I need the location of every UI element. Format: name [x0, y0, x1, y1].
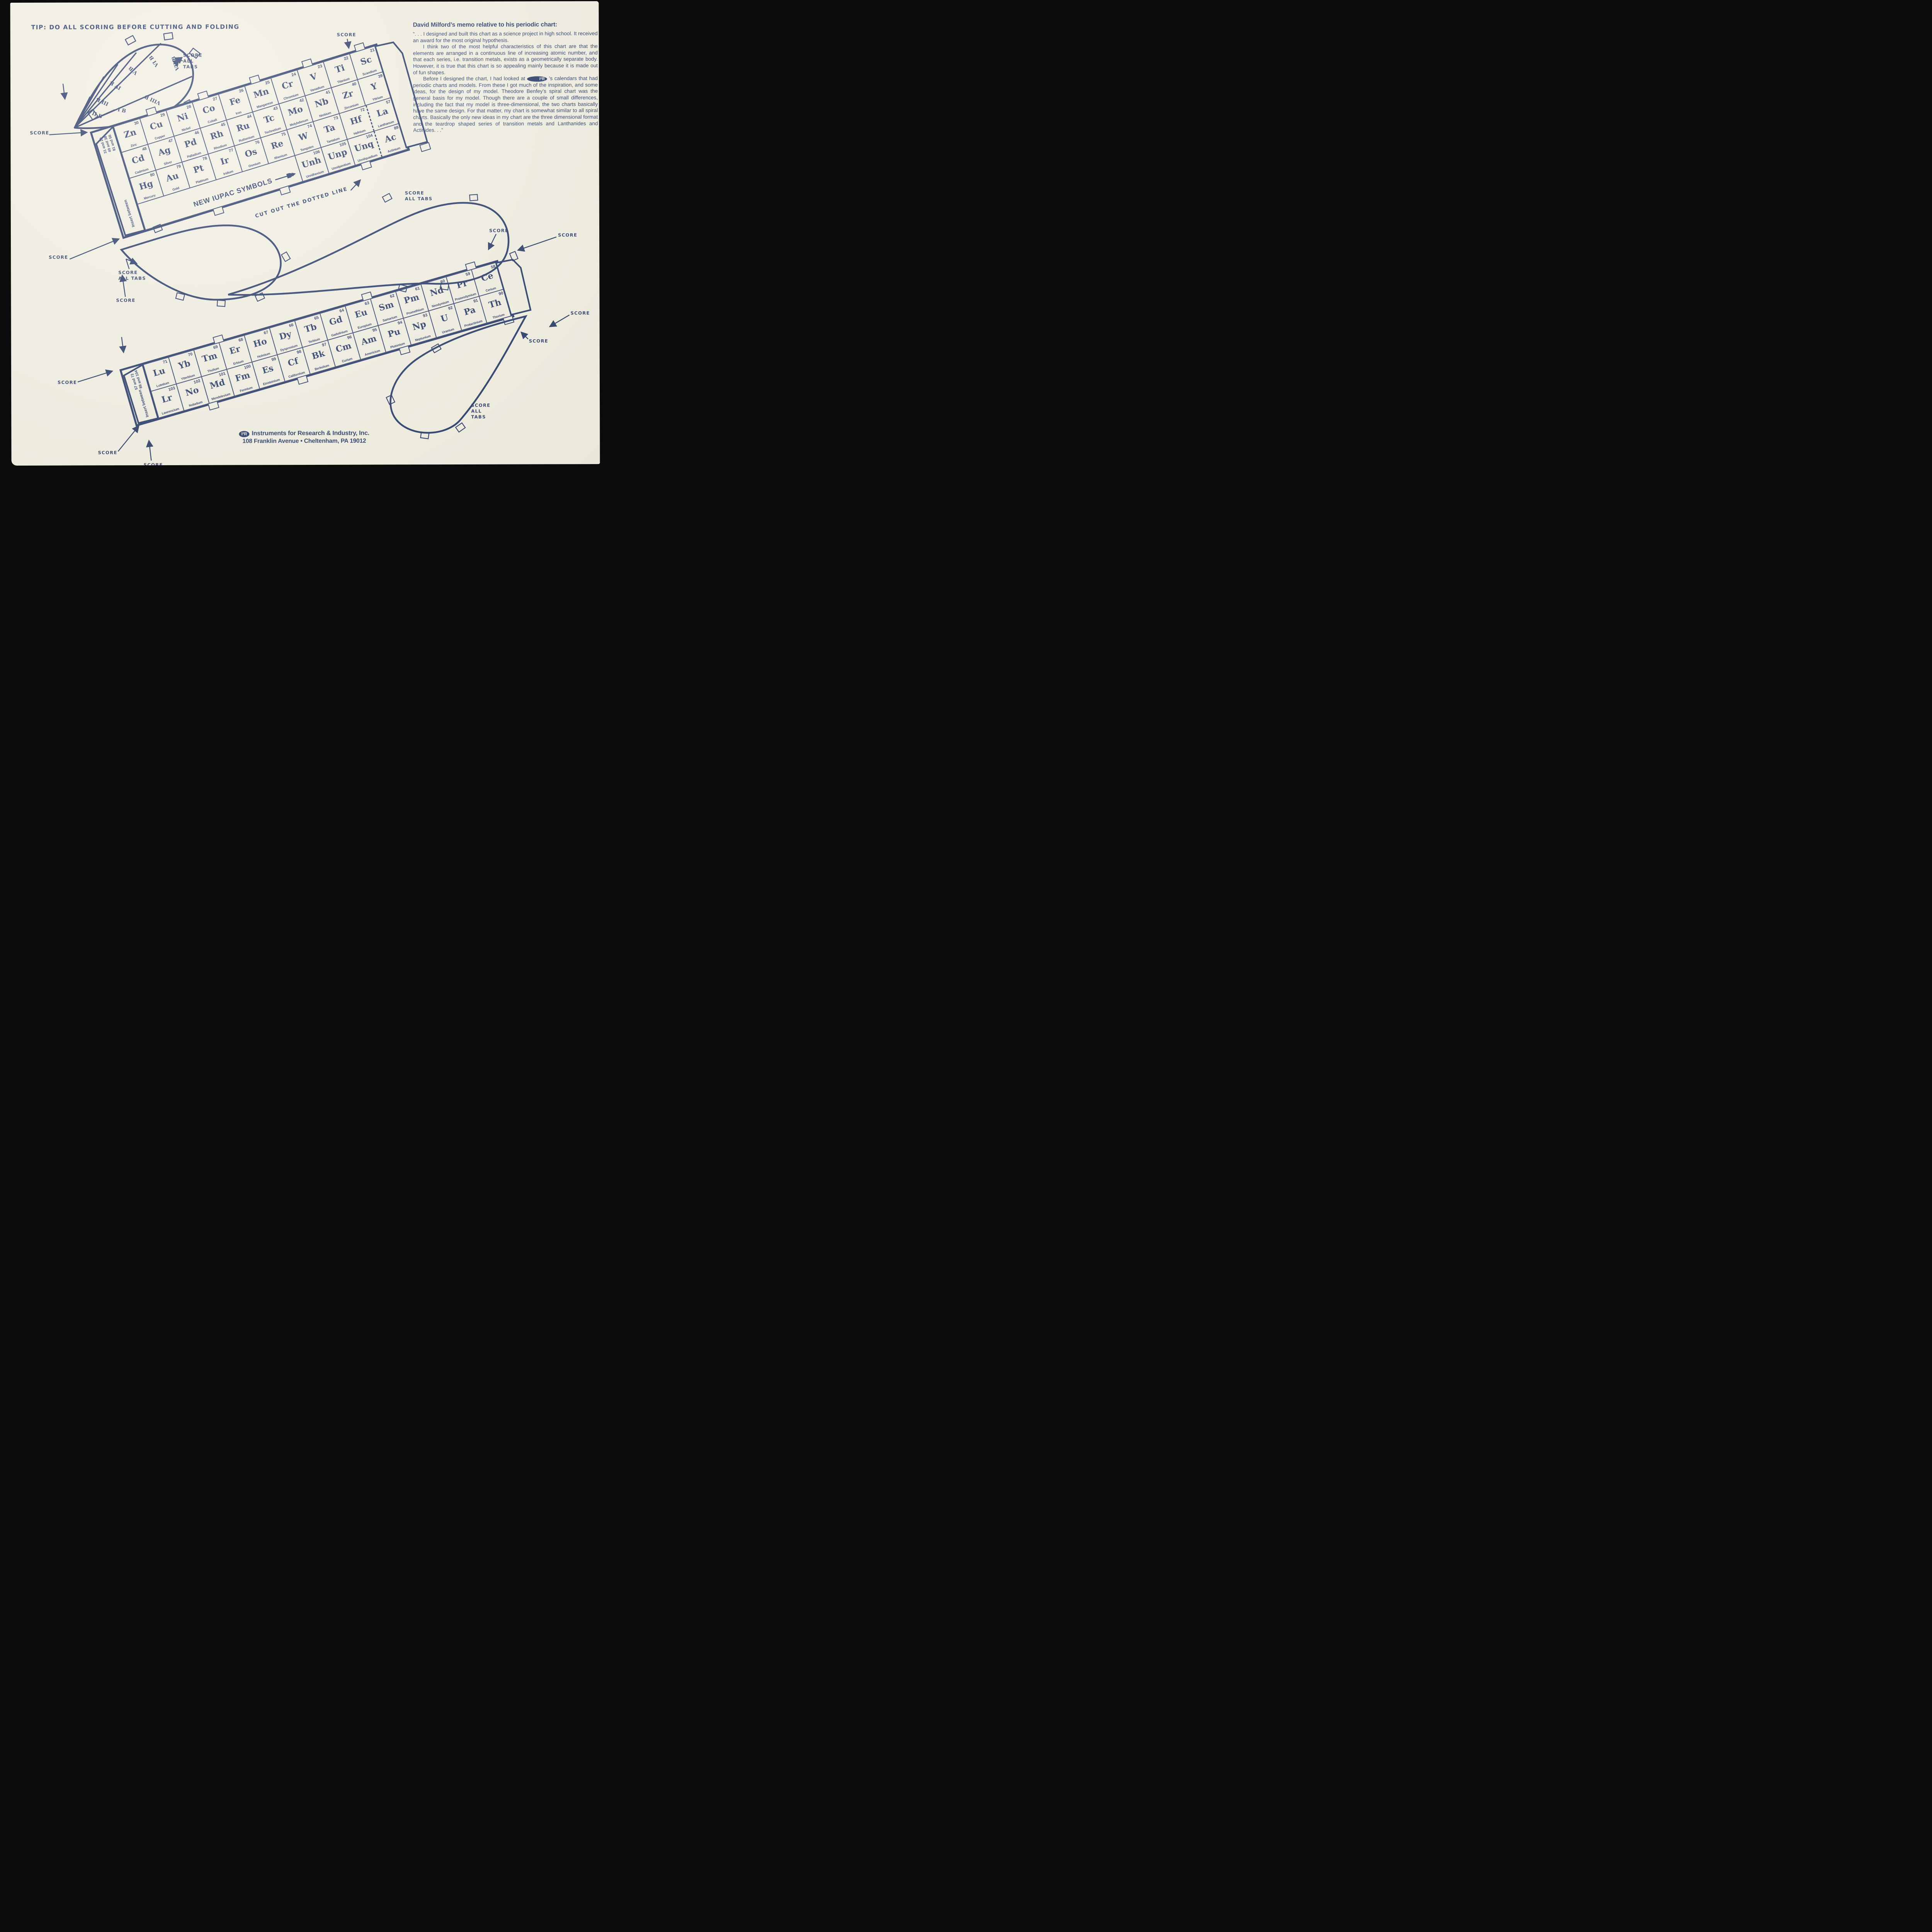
atomic-number: 39: [378, 73, 383, 79]
group-label-viib: VII B: [171, 56, 181, 71]
annotation-score-r1: SCORE: [489, 228, 509, 234]
annotation-score-r3: SCORE: [571, 310, 590, 316]
atomic-number: 98: [296, 349, 302, 355]
atomic-number: 92: [447, 305, 453, 311]
atomic-number: 24: [291, 72, 297, 78]
element-symbol: Au: [158, 168, 187, 186]
publisher-footer: I²RInstruments for Research & Industry, …: [223, 430, 385, 445]
atomic-number: 64: [339, 308, 345, 314]
publisher-address: 108 Franklin Avenue • Cheltenham, PA 190…: [223, 437, 385, 445]
element-symbol: La: [369, 104, 396, 121]
element-name: Americium: [359, 347, 385, 358]
element-symbol: Pt: [184, 160, 213, 178]
atomic-number: 90: [498, 291, 504, 296]
annotation-score-r4: SCORE: [529, 338, 548, 344]
element-symbol: Am: [355, 332, 383, 349]
i2r-logo-badge: I²R: [239, 431, 250, 437]
score-annotations: SCORESCORESCORE ALL TABSSCORESCORESCORE …: [10, 1, 599, 3]
element-name: Fermium: [233, 384, 259, 395]
atomic-number: 57: [386, 99, 391, 105]
group-label-viiib: VIII B: [144, 94, 162, 106]
publisher-name: Instruments for Research & Industry, Inc…: [252, 430, 369, 437]
element-symbol: Cu: [142, 117, 171, 134]
group-label-iib: II B: [91, 111, 103, 120]
scanned-sheet: { "colors":{"ink":"#2e3f6b","paper":"#f2…: [0, 0, 606, 474]
atomic-number: 73: [333, 116, 339, 121]
atomic-number: 28: [186, 104, 192, 110]
element-symbol: Y: [360, 78, 388, 95]
atomic-number: 60: [440, 279, 446, 284]
lanthanide-actinide-strip: 57 and 7289 and 104Insert between71LuLut…: [119, 260, 515, 427]
atomic-number: 41: [325, 90, 331, 95]
element-symbol: Lr: [153, 390, 181, 407]
atomic-number: 80: [150, 172, 155, 178]
element-symbol: Np: [406, 317, 433, 334]
element-symbol: Fe: [221, 93, 249, 110]
element-symbol: No: [179, 383, 206, 400]
atomic-number: 95: [372, 327, 378, 333]
atomic-number: 74: [307, 124, 313, 129]
element-name: Unnilpentium: [328, 160, 354, 172]
element-symbol: Tm: [196, 349, 223, 366]
atomic-number: 94: [397, 320, 403, 326]
atomic-number: 89: [393, 125, 399, 131]
atomic-number: 76: [254, 139, 260, 145]
annotation-score-bl1: SCORE: [58, 380, 77, 386]
atomic-number: 48: [141, 146, 147, 152]
element-symbol: Unq: [350, 138, 379, 155]
paper-sheet: TIP: DO ALL SCORING BEFORE CUTTING AND F…: [10, 1, 600, 466]
element-symbol: Sc: [352, 52, 381, 70]
group-label-ivb: IV B: [109, 80, 122, 91]
element-symbol: Tb: [297, 320, 324, 337]
atomic-number: 68: [238, 337, 244, 343]
atomic-number: 26: [238, 88, 244, 94]
element-symbol: Ac: [376, 129, 404, 147]
element-symbol: Lu: [146, 364, 173, 380]
element-symbol: Cm: [330, 339, 357, 356]
annotation-score-all-tabs-bottom: SCORE ALL TABS: [471, 403, 490, 420]
atomic-number: 22: [344, 56, 349, 61]
group-label-vib: VI B: [148, 54, 160, 68]
element-symbol: Pa: [456, 303, 483, 319]
element-symbol: Nb: [307, 94, 336, 112]
atomic-number: 71: [162, 359, 168, 365]
group-teardrop-labels: II BI BIII BIV BV BVI BVII BVIII B: [10, 1, 599, 3]
element-symbol: Sm: [372, 298, 400, 315]
i2r-logo-badge: I²R: [527, 77, 547, 82]
atomic-number: 96: [347, 335, 352, 340]
element-symbol: V: [299, 68, 328, 86]
element-symbol: Cf: [279, 354, 307, 371]
element-symbol: Er: [221, 342, 248, 358]
element-symbol: Nd: [423, 283, 451, 300]
atomic-number: 42: [299, 98, 305, 104]
element-symbol: Es: [254, 361, 282, 378]
annotation-score-left-mid: SCORE: [49, 255, 68, 260]
element-symbol: U: [431, 310, 458, 327]
element-name: Einsteinium: [259, 376, 284, 387]
element-symbol: Rh: [202, 126, 231, 144]
element-name: Mendelevium: [208, 391, 234, 402]
memo-paragraph-3: Before I designed the chart, I had looke…: [413, 75, 598, 134]
element-name: Actinium: [381, 144, 407, 155]
annotation-score-r2: SCORE: [558, 232, 577, 238]
annotation-score-bl2: SCORE: [98, 450, 117, 456]
element-name: Unnilhexium: [301, 168, 328, 180]
element-symbol: Ta: [315, 120, 344, 137]
element-name: Uranium: [435, 325, 461, 336]
element-symbol: Pm: [398, 291, 425, 307]
element-symbol: Ni: [168, 109, 197, 126]
atomic-number: 78: [202, 156, 208, 162]
element-symbol: Co: [194, 100, 223, 118]
tip-note: TIP: DO ALL SCORING BEFORE CUTTING AND F…: [31, 22, 240, 32]
element-symbol: Ru: [229, 118, 257, 136]
element-symbol: Re: [263, 136, 291, 153]
element-name: Nobelium: [183, 398, 208, 409]
atomic-number: 65: [314, 315, 320, 321]
atomic-number: 21: [369, 48, 375, 53]
element-symbol: Hg: [132, 177, 160, 194]
atomic-number: 61: [415, 286, 420, 292]
atomic-number: 46: [194, 130, 200, 136]
atomic-number: 62: [389, 293, 395, 299]
memo-paragraph-1: “. . . I designed and built this chart a…: [413, 31, 598, 44]
atomic-number: 72: [360, 107, 366, 113]
element-symbol: Ce: [474, 269, 501, 285]
atomic-number: 25: [265, 80, 270, 86]
element-symbol: Dy: [272, 327, 299, 344]
element-symbol: Mo: [281, 102, 310, 120]
element-symbol: Bk: [304, 347, 332, 363]
atomic-number: 91: [473, 298, 479, 304]
atomic-number: 93: [422, 313, 428, 318]
group-label-ib: I B: [117, 107, 126, 114]
atomic-number: 47: [168, 138, 173, 144]
atomic-number: 44: [247, 114, 252, 120]
element-symbol: Zr: [333, 86, 362, 104]
atomic-number: 27: [212, 96, 218, 102]
element-symbol: Zn: [116, 125, 145, 142]
atomic-number: 99: [271, 357, 277, 362]
atomic-number: 70: [187, 352, 193, 357]
atomic-number: 23: [317, 64, 323, 70]
annotation-score-top: SCORE: [337, 32, 356, 38]
element-name: Lawrencium: [158, 406, 183, 417]
group-label-iiib: III B: [95, 96, 110, 107]
element-symbol: Os: [237, 144, 265, 162]
element-symbol: Yb: [171, 356, 198, 373]
element-symbol: Fm: [229, 369, 256, 385]
memo-title: David Milford’s memo relative to his per…: [413, 21, 598, 29]
annotation-score-mid: SCORE: [116, 298, 135, 303]
atomic-number: 69: [213, 344, 219, 350]
element-symbol: Ho: [247, 335, 274, 351]
element-symbol: W: [289, 128, 318, 145]
element-name: Neptunium: [410, 333, 435, 344]
memo: David Milford’s memo relative to his per…: [413, 21, 598, 134]
element-symbol: Cd: [124, 151, 153, 168]
element-symbol: Unp: [323, 146, 352, 163]
element-symbol: Cr: [273, 77, 302, 94]
atomic-number: 79: [176, 164, 182, 170]
atomic-number: 59: [465, 271, 471, 277]
element-symbol: Eu: [347, 305, 375, 322]
annotation-score-all-tabs-top: SCORE ALL TABS: [183, 53, 202, 70]
annotation-score-all-tabs-right: SCORE ALL TABS: [405, 190, 433, 202]
atomic-number: 58: [490, 264, 496, 270]
element-symbol: Pr: [448, 276, 476, 293]
group-label-vb: V B: [128, 65, 139, 76]
annotation-score-bl3: SCORE: [144, 462, 163, 466]
atomic-number: 30: [134, 120, 139, 126]
element-symbol: Pu: [380, 325, 408, 341]
atomic-number: 66: [289, 323, 294, 328]
element-symbol: Md: [204, 376, 231, 393]
element-symbol: Th: [481, 296, 509, 312]
element-name: Berkelium: [309, 362, 335, 372]
atomic-number: 29: [160, 112, 166, 118]
annotation-score-left-top: SCORE: [30, 130, 49, 136]
atomic-number: 45: [220, 122, 226, 128]
element-symbol: Pd: [176, 134, 205, 152]
element-symbol: Unh: [297, 154, 326, 171]
element-symbol: Mn: [247, 85, 276, 102]
annotation-score-all-tabs-mid: SCORE ALL TABS: [118, 270, 146, 281]
atomic-number: 43: [273, 106, 279, 112]
element-name: Protactinium: [461, 318, 486, 329]
memo-paragraph-2: I think two of the most helpful characte…: [413, 43, 598, 76]
element-symbol: Ti: [326, 60, 354, 78]
element-symbol: Ag: [150, 143, 179, 160]
element-symbol: Tc: [255, 110, 284, 128]
atomic-number: 75: [281, 131, 286, 137]
atomic-number: 63: [364, 301, 370, 306]
element-symbol: Hf: [342, 112, 371, 129]
atomic-number: 77: [228, 148, 234, 153]
atomic-number: 40: [351, 82, 357, 87]
atomic-number: 97: [321, 342, 327, 348]
atomic-number: 67: [263, 330, 269, 336]
element-name: Curium: [334, 354, 360, 365]
element-symbol: Ir: [211, 152, 239, 170]
element-symbol: Gd: [322, 313, 350, 329]
